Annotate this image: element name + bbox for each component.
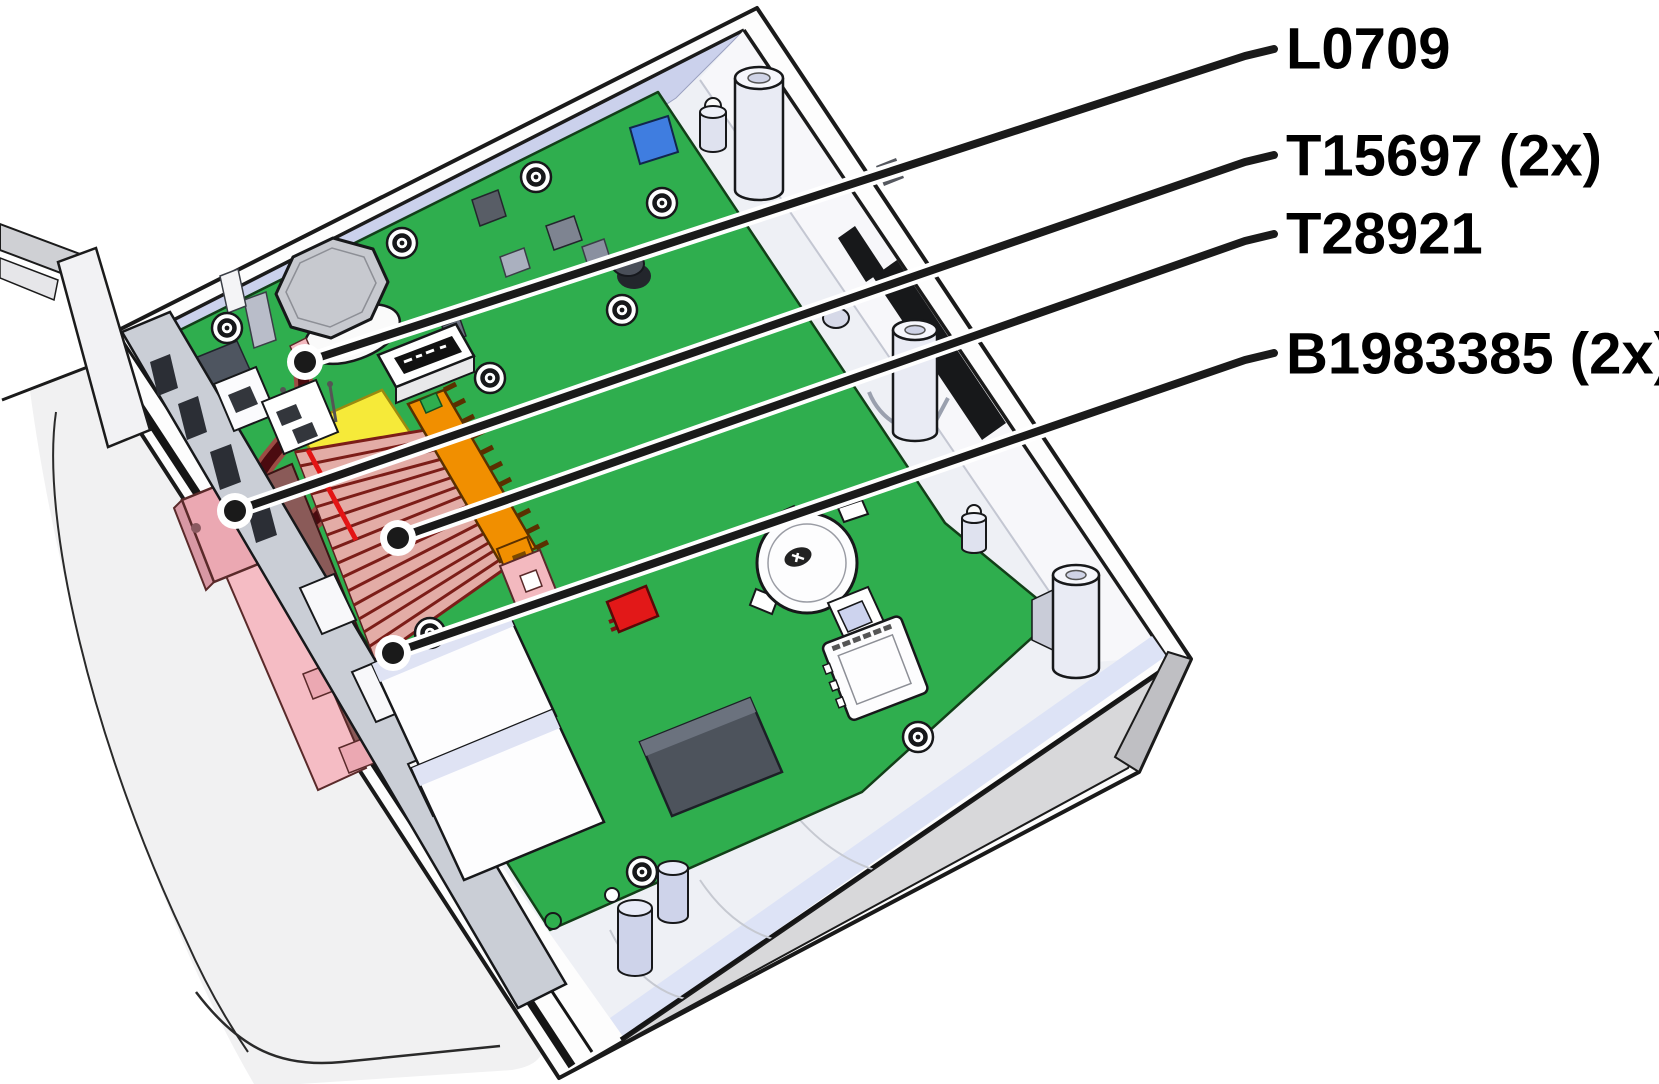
part-label-T28921: T28921 bbox=[1286, 202, 1483, 267]
part-labels: L0709 T15697 (2x) T28921 B1983385 (2x) bbox=[1286, 17, 1659, 387]
parts-diagram-figure: L0709 T15697 (2x) T28921 B1983385 (2x) bbox=[0, 0, 1659, 1084]
parts-diagram-page: L0709 T15697 (2x) T28921 B1983385 (2x) bbox=[0, 0, 1659, 1084]
part-label-L0709: L0709 bbox=[1286, 17, 1450, 82]
part-label-T15697: T15697 (2x) bbox=[1286, 124, 1602, 189]
part-label-B1983385: B1983385 (2x) bbox=[1286, 322, 1659, 387]
